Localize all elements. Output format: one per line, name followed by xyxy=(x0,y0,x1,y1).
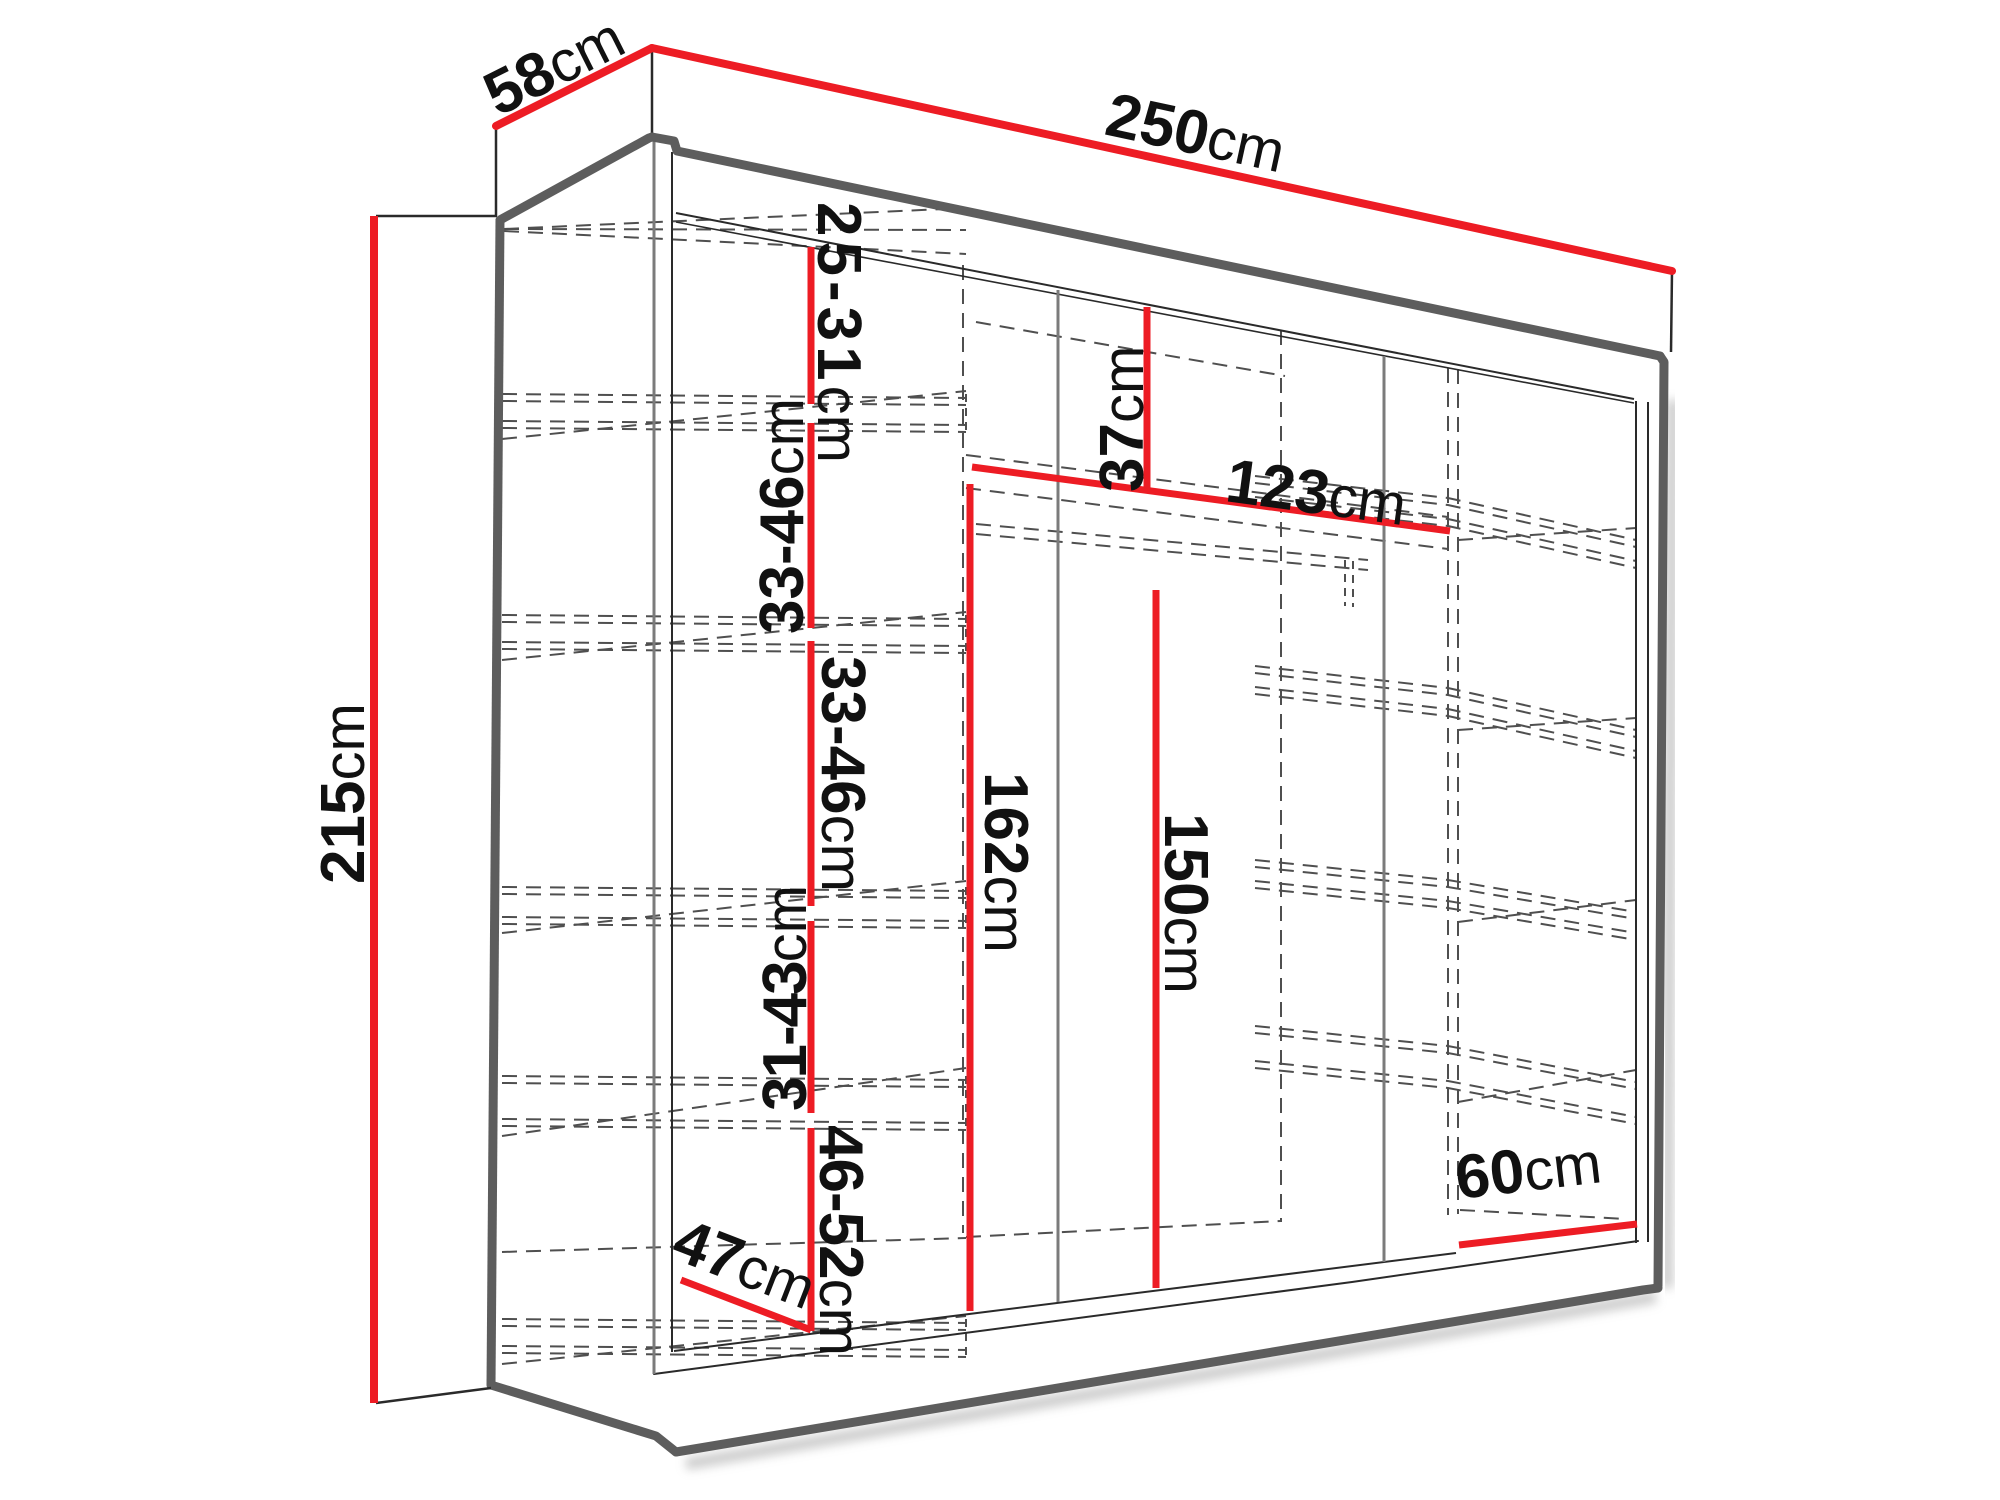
svg-text:37cm: 37cm xyxy=(1088,346,1157,492)
svg-text:31-43cm: 31-43cm xyxy=(751,885,820,1111)
svg-text:33-46cm: 33-46cm xyxy=(748,398,817,634)
svg-text:150cm: 150cm xyxy=(1151,813,1220,994)
svg-text:162cm: 162cm xyxy=(971,772,1040,953)
svg-text:46-52cm: 46-52cm xyxy=(806,1125,875,1356)
svg-text:215cm: 215cm xyxy=(309,703,378,884)
svg-text:33-46cm: 33-46cm xyxy=(808,656,877,892)
